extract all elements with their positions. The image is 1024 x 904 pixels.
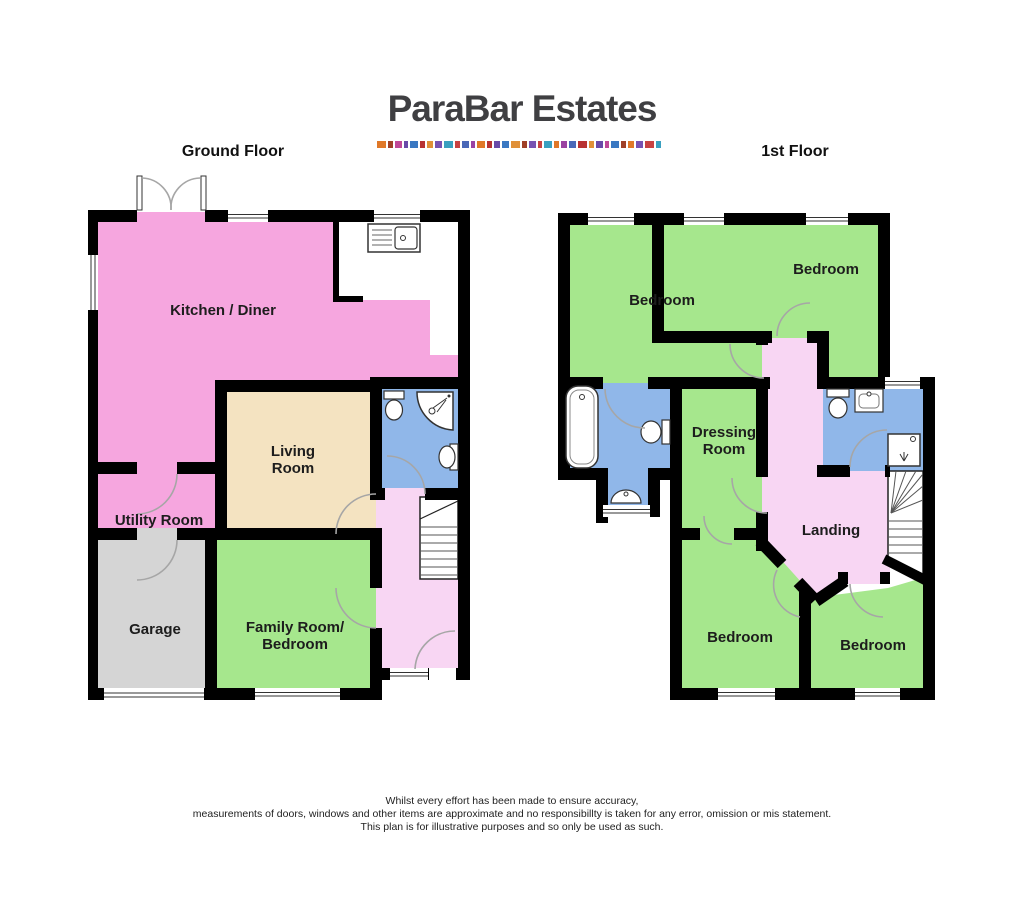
window: [374, 210, 420, 222]
window: [255, 688, 340, 700]
garage-door-opening: [104, 688, 204, 700]
logo-dash: [628, 141, 634, 148]
window: [806, 213, 848, 225]
wall-sink: [855, 389, 883, 412]
logo-dash: [656, 141, 661, 148]
room-label-family-room-bedroom: Family Room/ Bedroom: [238, 619, 352, 653]
logo-dash: [455, 141, 460, 148]
room-label-kitchen-diner: Kitchen / Diner: [138, 302, 308, 319]
room-fill-family: [211, 528, 376, 694]
shower-tray: [888, 434, 920, 466]
disclaimer-line-3: This plan is for illustrative purposes a…: [0, 821, 1024, 834]
logo-dash: [435, 141, 442, 148]
ground-stairs: [420, 497, 458, 579]
window: [390, 668, 428, 680]
logo-dash: [611, 141, 619, 148]
logo-dash: [522, 141, 527, 148]
logo-dash: [621, 141, 626, 148]
floorplan-canvas: [0, 0, 1024, 904]
window: [684, 213, 724, 225]
logo-dash: [477, 141, 485, 148]
window: [885, 377, 920, 389]
disclaimer-line-1: Whilst every effort has been made to ens…: [0, 795, 1024, 808]
door-arc: [142, 178, 171, 210]
logo-dash: [420, 141, 425, 148]
logo-dash: [645, 141, 654, 148]
room-fill-utility: [93, 212, 221, 540]
room-label-bedroom-top-left: Bedroom: [612, 292, 712, 309]
logo-dash: [444, 141, 453, 148]
kitchen-sink: [368, 224, 420, 252]
logo-dash: [554, 141, 559, 148]
room-label-landing: Landing: [781, 522, 881, 539]
room-label-dressing-room: Dressing Room: [684, 424, 764, 458]
logo-dash: [487, 141, 492, 148]
room-fill-dressing: [676, 383, 762, 534]
logo-dash: [578, 141, 587, 148]
logo-dash: [511, 141, 520, 148]
door-arc: [171, 178, 200, 210]
room-label-bedroom-top-right: Bedroom: [776, 261, 876, 278]
logo-dash: [636, 141, 643, 148]
logo-dash: [569, 141, 576, 148]
toilet: [827, 389, 849, 418]
logo-dash: [388, 141, 393, 148]
bath-tub: [566, 386, 598, 468]
room-label-garage: Garage: [105, 621, 205, 638]
logo-dash: [529, 141, 536, 148]
toilet: [641, 420, 670, 444]
logo-dash: [589, 141, 594, 148]
logo-dash: [494, 141, 500, 148]
room-fill-garage: [93, 528, 211, 694]
ground-floor-header: Ground Floor: [133, 143, 333, 161]
logo-dash: [471, 141, 475, 148]
logo-dash: [502, 141, 509, 148]
logo-dash: [544, 141, 552, 148]
window: [603, 505, 650, 517]
logo-dash: [462, 141, 469, 148]
first-floor-header: 1st Floor: [720, 143, 870, 161]
window: [588, 213, 634, 225]
logo-dash: [605, 141, 609, 148]
window: [228, 210, 268, 222]
room-label-bedroom-bottom-left: Bedroom: [690, 629, 790, 646]
floorplan-page: ParaBar Estates Ground Floor 1st Floor K…: [0, 0, 1024, 904]
logo-dash: [561, 141, 567, 148]
logo-dash: [410, 141, 418, 148]
disclaimer: Whilst every effort has been made to ens…: [0, 795, 1024, 835]
room-label-bedroom-bottom-right: Bedroom: [823, 637, 923, 654]
front-door-opening: [429, 668, 456, 680]
logo-dash: [538, 141, 542, 148]
basin: [439, 444, 458, 470]
room-label-utility-room: Utility Room: [89, 512, 229, 529]
logo-dash: [404, 141, 408, 148]
disclaimer-line-2: measurements of doors, windows and other…: [0, 808, 1024, 821]
window: [88, 255, 98, 310]
logo-dash: [395, 141, 402, 148]
logo-dash: [596, 141, 603, 148]
logo-dash: [427, 141, 433, 148]
toilet: [384, 391, 404, 420]
window: [718, 688, 775, 700]
window: [855, 688, 900, 700]
room-label-living-room: Living Room: [258, 443, 328, 477]
logo-dash: [377, 141, 386, 148]
logo-title: ParaBar Estates: [300, 88, 744, 130]
logo-dashes: [377, 141, 677, 149]
